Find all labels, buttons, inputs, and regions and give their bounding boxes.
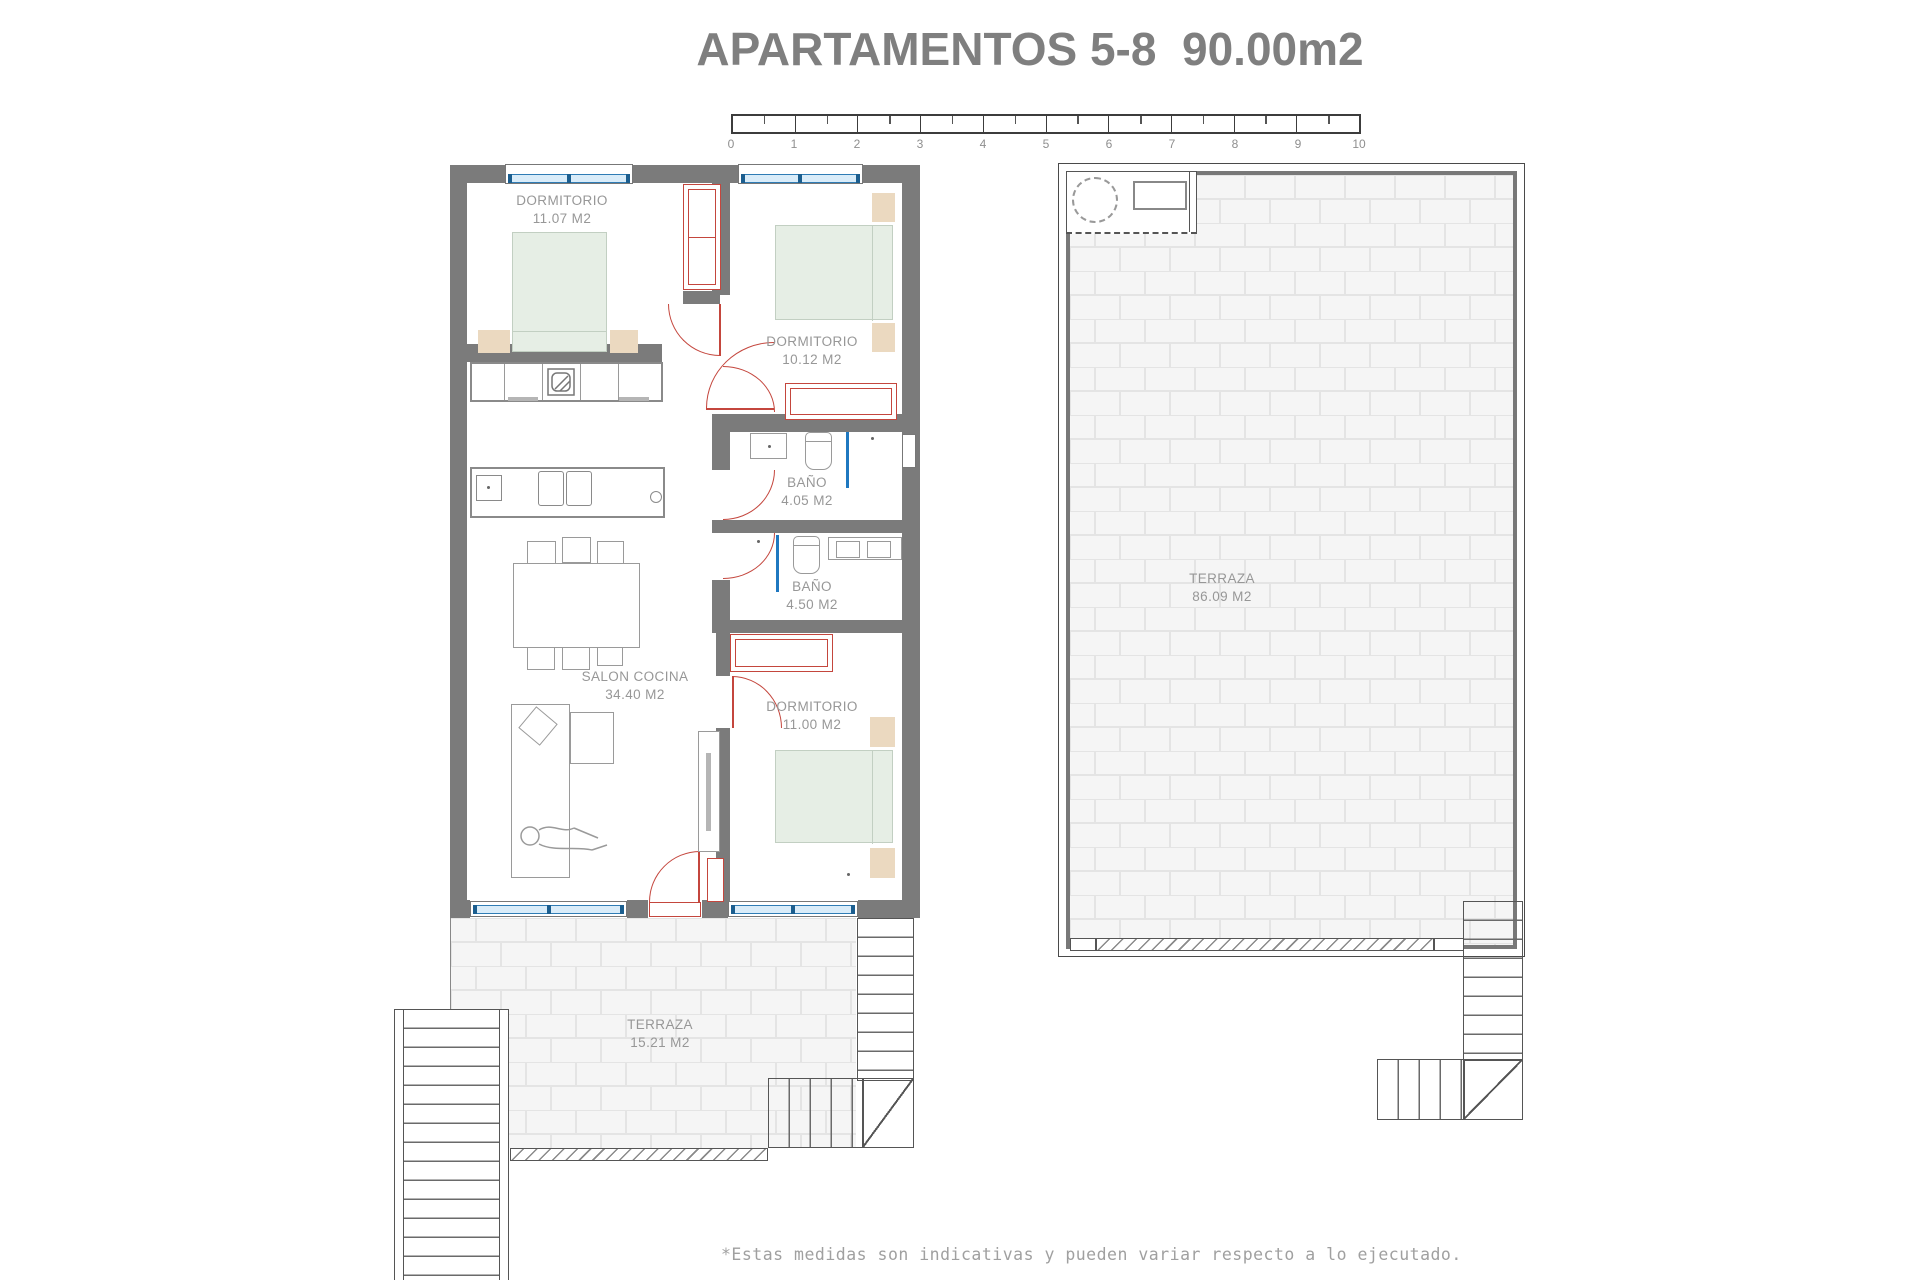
room-label-salon: SALON COCINA 34.40 M2 [555,668,715,704]
divider-line [1189,172,1191,232]
stairs-right-run [1377,1059,1465,1120]
terraza-upper [1066,171,1517,949]
ruler-cell [1109,116,1172,132]
stairs-corner-landing [862,1078,914,1148]
room-label-dormitorio-2: DORMITORIO 10.12 M2 [732,333,892,369]
shower-niche [902,434,916,468]
room-label-dormitorio-1: DORMITORIO 11.07 M2 [482,192,642,228]
ruler-cell [984,116,1047,132]
page-title: APARTAMENTOS 5-8 90.00m2 [640,22,1420,76]
wardrobe-salon [707,858,724,902]
door-leaf [719,304,721,356]
wall-segment [712,520,902,533]
bed-dormitorio-1 [512,232,607,352]
chair [562,537,591,563]
ruler-cell [1172,116,1235,132]
stairs-right-flight [1463,901,1523,1061]
ruler-number: 5 [1038,137,1054,151]
nightstand [870,848,895,878]
door-arc-bano-2 [723,533,775,579]
nightstand [872,193,895,222]
stove-icon [547,368,575,396]
nightstand [610,330,638,353]
bed-dormitorio-3 [775,750,893,843]
ruler-number: 10 [1351,137,1367,151]
wall-segment [712,620,902,633]
toilet-bano-2 [793,536,820,574]
ruler-number: 2 [849,137,865,151]
window-dormitorio-3 [728,901,858,917]
wall-segment [902,165,920,918]
window-salon [470,901,627,917]
room-label-bano-1: BAÑO 4.05 M2 [727,474,887,510]
faucet-icon [650,491,662,503]
window-dormitorio-2 [738,164,863,184]
sink-bano-1 [750,433,787,459]
wall-segment [627,900,648,918]
ruler-number: 0 [723,137,739,151]
ruler-number: 9 [1290,137,1306,151]
tv-unit [698,731,720,852]
room-label-dormitorio-3: DORMITORIO 11.00 M2 [732,698,892,734]
ruler-number: 6 [1101,137,1117,151]
person-figure [514,806,614,862]
scale-ruler [731,114,1361,134]
stairs-right-landing [1463,1059,1523,1120]
wall-segment [702,900,728,918]
door-arc-entrance [649,851,700,902]
ruler-number: 1 [786,137,802,151]
kitchen-island [470,467,665,518]
stairs-corner-run [768,1078,864,1148]
window-dormitorio-1 [505,164,633,184]
dashed-circle [1072,177,1118,223]
entrance-threshold [649,902,701,917]
wall-segment [450,165,467,918]
sofa-chaise [570,712,614,764]
disclaimer-text: *Estas medidas son indicativas y pueden … [721,1202,1514,1280]
ruler-number: 3 [912,137,928,151]
ruler-number: 4 [975,137,991,151]
ruler-cell [921,116,984,132]
ruler-cell [1235,116,1298,132]
wall-segment [683,291,720,304]
nightstand [478,330,510,353]
wall-segment [633,165,738,183]
room-label-terraza-1: TERRAZA 15.21 M2 [580,1016,740,1052]
ruler-cell [733,116,796,132]
dining-table [513,563,640,648]
floorplan-canvas: APARTAMENTOS 5-8 90.00m2 0 1 2 3 4 5 6 7… [0,0,1920,1280]
edge-box [1070,938,1096,951]
stairs-treads [403,1010,500,1280]
chair [597,541,624,565]
toilet-bano-1 [805,432,832,470]
stairs-exterior-long [394,1009,509,1280]
vanity-bano-2 [828,537,902,560]
utility-box [1133,181,1187,210]
wardrobe-dormitorio-3 [730,634,833,672]
wall-segment [716,633,730,676]
door-arc-kitchen [668,304,720,356]
terraza-edge-hatch [1096,938,1434,951]
wall-segment [712,432,730,470]
terraza-utility-area [1066,171,1197,234]
wardrobe-dormitorio-2 [785,383,897,420]
ruler-cell [1297,116,1359,132]
ceiling-dot [871,437,874,440]
disclaimer-line-es: *Estas medidas son indicativas y pueden … [721,1244,1514,1265]
ceiling-dot [757,540,760,543]
scale-ruler-numbers: 0 1 2 3 4 5 6 7 8 9 10 [723,137,1369,153]
terraza-edge-hatch [510,1148,768,1161]
ruler-number: 7 [1164,137,1180,151]
ceiling-dot [847,873,850,876]
bed-dormitorio-2 [775,225,893,320]
wall-segment [858,900,920,918]
ruler-cell [858,116,921,132]
wall-segment [712,580,730,620]
kitchen-counter [470,362,663,402]
edge-box [1434,938,1464,951]
room-label-bano-2: BAÑO 4.50 M2 [732,578,892,614]
door-leaf [698,851,700,902]
wardrobe-dormitorio-1 [683,184,721,290]
ruler-cell [1047,116,1110,132]
ruler-number: 8 [1227,137,1243,151]
wall-segment [450,900,470,918]
stairs-side-flight [857,918,914,1081]
room-label-terraza-2: TERRAZA 86.09 M2 [1142,570,1302,606]
ruler-cell [796,116,859,132]
